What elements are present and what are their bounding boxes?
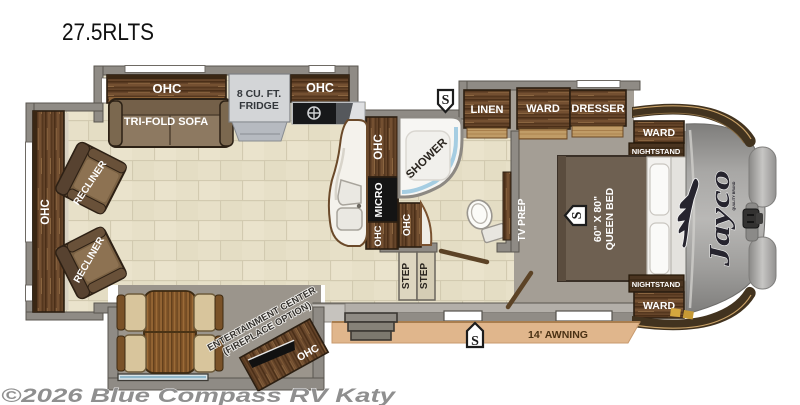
svg-text:OHC: OHC: [373, 225, 384, 246]
svg-text:TRI-FOLD SOFA: TRI-FOLD SOFA: [124, 116, 208, 128]
svg-text:S: S: [471, 334, 479, 349]
svg-text:OHC: OHC: [373, 134, 385, 160]
svg-text:WARD: WARD: [643, 127, 675, 139]
svg-text:NIGHTSTAND: NIGHTSTAND: [632, 280, 681, 289]
svg-text:MICRO: MICRO: [373, 183, 385, 218]
svg-text:STEP: STEP: [401, 263, 412, 289]
svg-text:8 CU. FT.: 8 CU. FT.: [237, 88, 281, 100]
svg-text:FRIDGE: FRIDGE: [239, 100, 279, 112]
svg-text:QUEEN BED: QUEEN BED: [604, 187, 616, 250]
svg-text:OHC: OHC: [402, 214, 413, 236]
svg-text:TV PREP: TV PREP: [517, 198, 528, 241]
svg-text:OHC: OHC: [306, 81, 334, 95]
svg-text:14' AWNING: 14' AWNING: [528, 329, 588, 341]
svg-text:©2026 Blue Compass RV Katy: ©2026 Blue Compass RV Katy: [1, 386, 397, 405]
svg-text:WARD: WARD: [643, 300, 675, 312]
svg-text:S: S: [442, 93, 450, 108]
svg-text:WARD: WARD: [526, 103, 560, 115]
svg-text:S: S: [570, 211, 585, 219]
svg-text:QUALITY BRAND: QUALITY BRAND: [732, 181, 736, 210]
svg-text:27.5RLTS: 27.5RLTS: [62, 19, 154, 46]
svg-text:OHC: OHC: [40, 199, 52, 225]
svg-text:NIGHTSTAND: NIGHTSTAND: [632, 147, 681, 156]
svg-text:DRESSER: DRESSER: [571, 103, 624, 115]
svg-text:STEP: STEP: [419, 263, 430, 289]
svg-text:60" X 80": 60" X 80": [592, 196, 604, 242]
svg-text:LINEN: LINEN: [471, 104, 504, 116]
svg-text:OHC: OHC: [153, 81, 183, 96]
